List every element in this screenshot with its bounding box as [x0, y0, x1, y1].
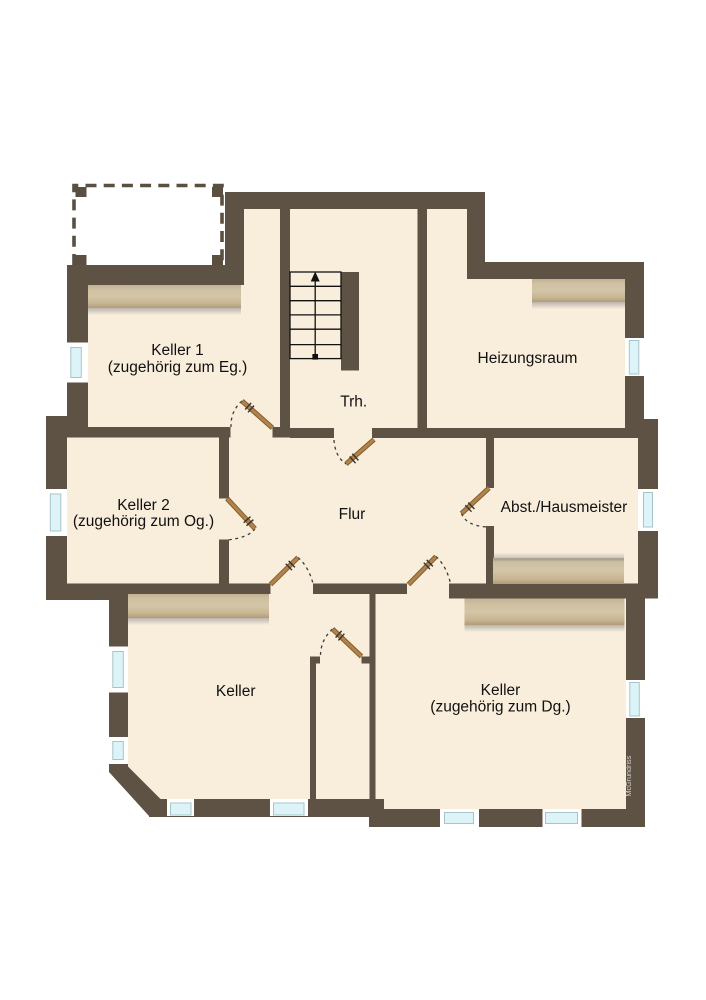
svg-text:Abst./Hausmeister: Abst./Hausmeister	[501, 499, 628, 516]
svg-text:McGrundriss: McGrundriss	[624, 755, 633, 796]
svg-text:Trh.: Trh.	[340, 394, 367, 411]
svg-text:(zugehörig zum Og.): (zugehörig zum Og.)	[73, 513, 214, 530]
svg-text:(zugehörig zum Eg.): (zugehörig zum Eg.)	[108, 359, 248, 376]
svg-text:Keller 1: Keller 1	[151, 342, 204, 359]
svg-text:Keller: Keller	[216, 683, 256, 700]
svg-text:(zugehörig zum Dg.): (zugehörig zum Dg.)	[430, 699, 570, 716]
svg-text:Keller 2: Keller 2	[117, 497, 170, 514]
svg-text:Heizungsraum: Heizungsraum	[478, 350, 578, 367]
svg-text:Keller: Keller	[481, 682, 521, 699]
svg-text:Flur: Flur	[339, 506, 366, 523]
